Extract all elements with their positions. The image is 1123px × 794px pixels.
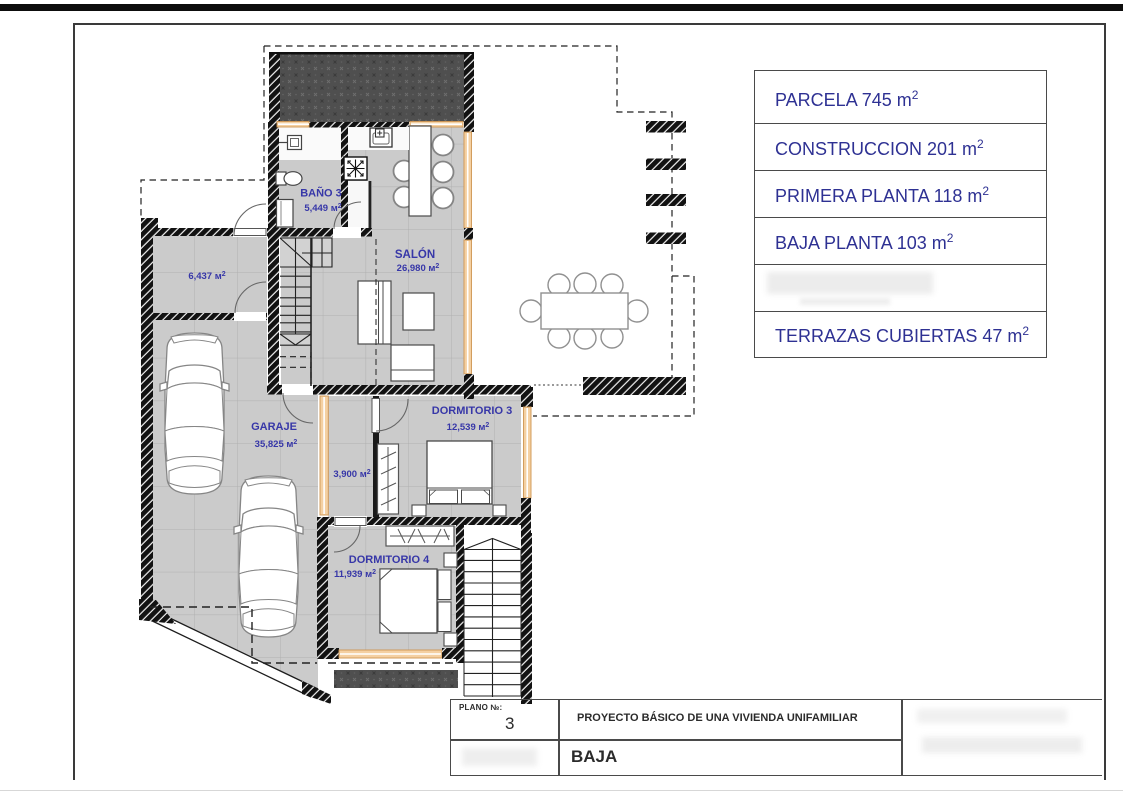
- svg-text:11,939 м2: 11,939 м2: [334, 569, 376, 580]
- svg-text:6,437 м2: 6,437 м2: [188, 271, 225, 282]
- svg-text:DORMITORIO 4: DORMITORIO 4: [349, 554, 430, 566]
- svg-text:DORMITORIO 3: DORMITORIO 3: [432, 405, 512, 417]
- svg-text:26,980 м2: 26,980 м2: [397, 263, 440, 274]
- svg-text:35,825 м2: 35,825 м2: [255, 439, 298, 450]
- svg-text:3,900 м2: 3,900 м2: [333, 469, 370, 480]
- svg-text:12,539 м2: 12,539 м2: [447, 422, 490, 433]
- svg-text:BAÑO 3: BAÑO 3: [300, 187, 342, 200]
- svg-text:GARAJE: GARAJE: [251, 421, 297, 433]
- svg-text:5,449 м2: 5,449 м2: [304, 203, 341, 214]
- svg-text:SALÓN: SALÓN: [395, 248, 435, 261]
